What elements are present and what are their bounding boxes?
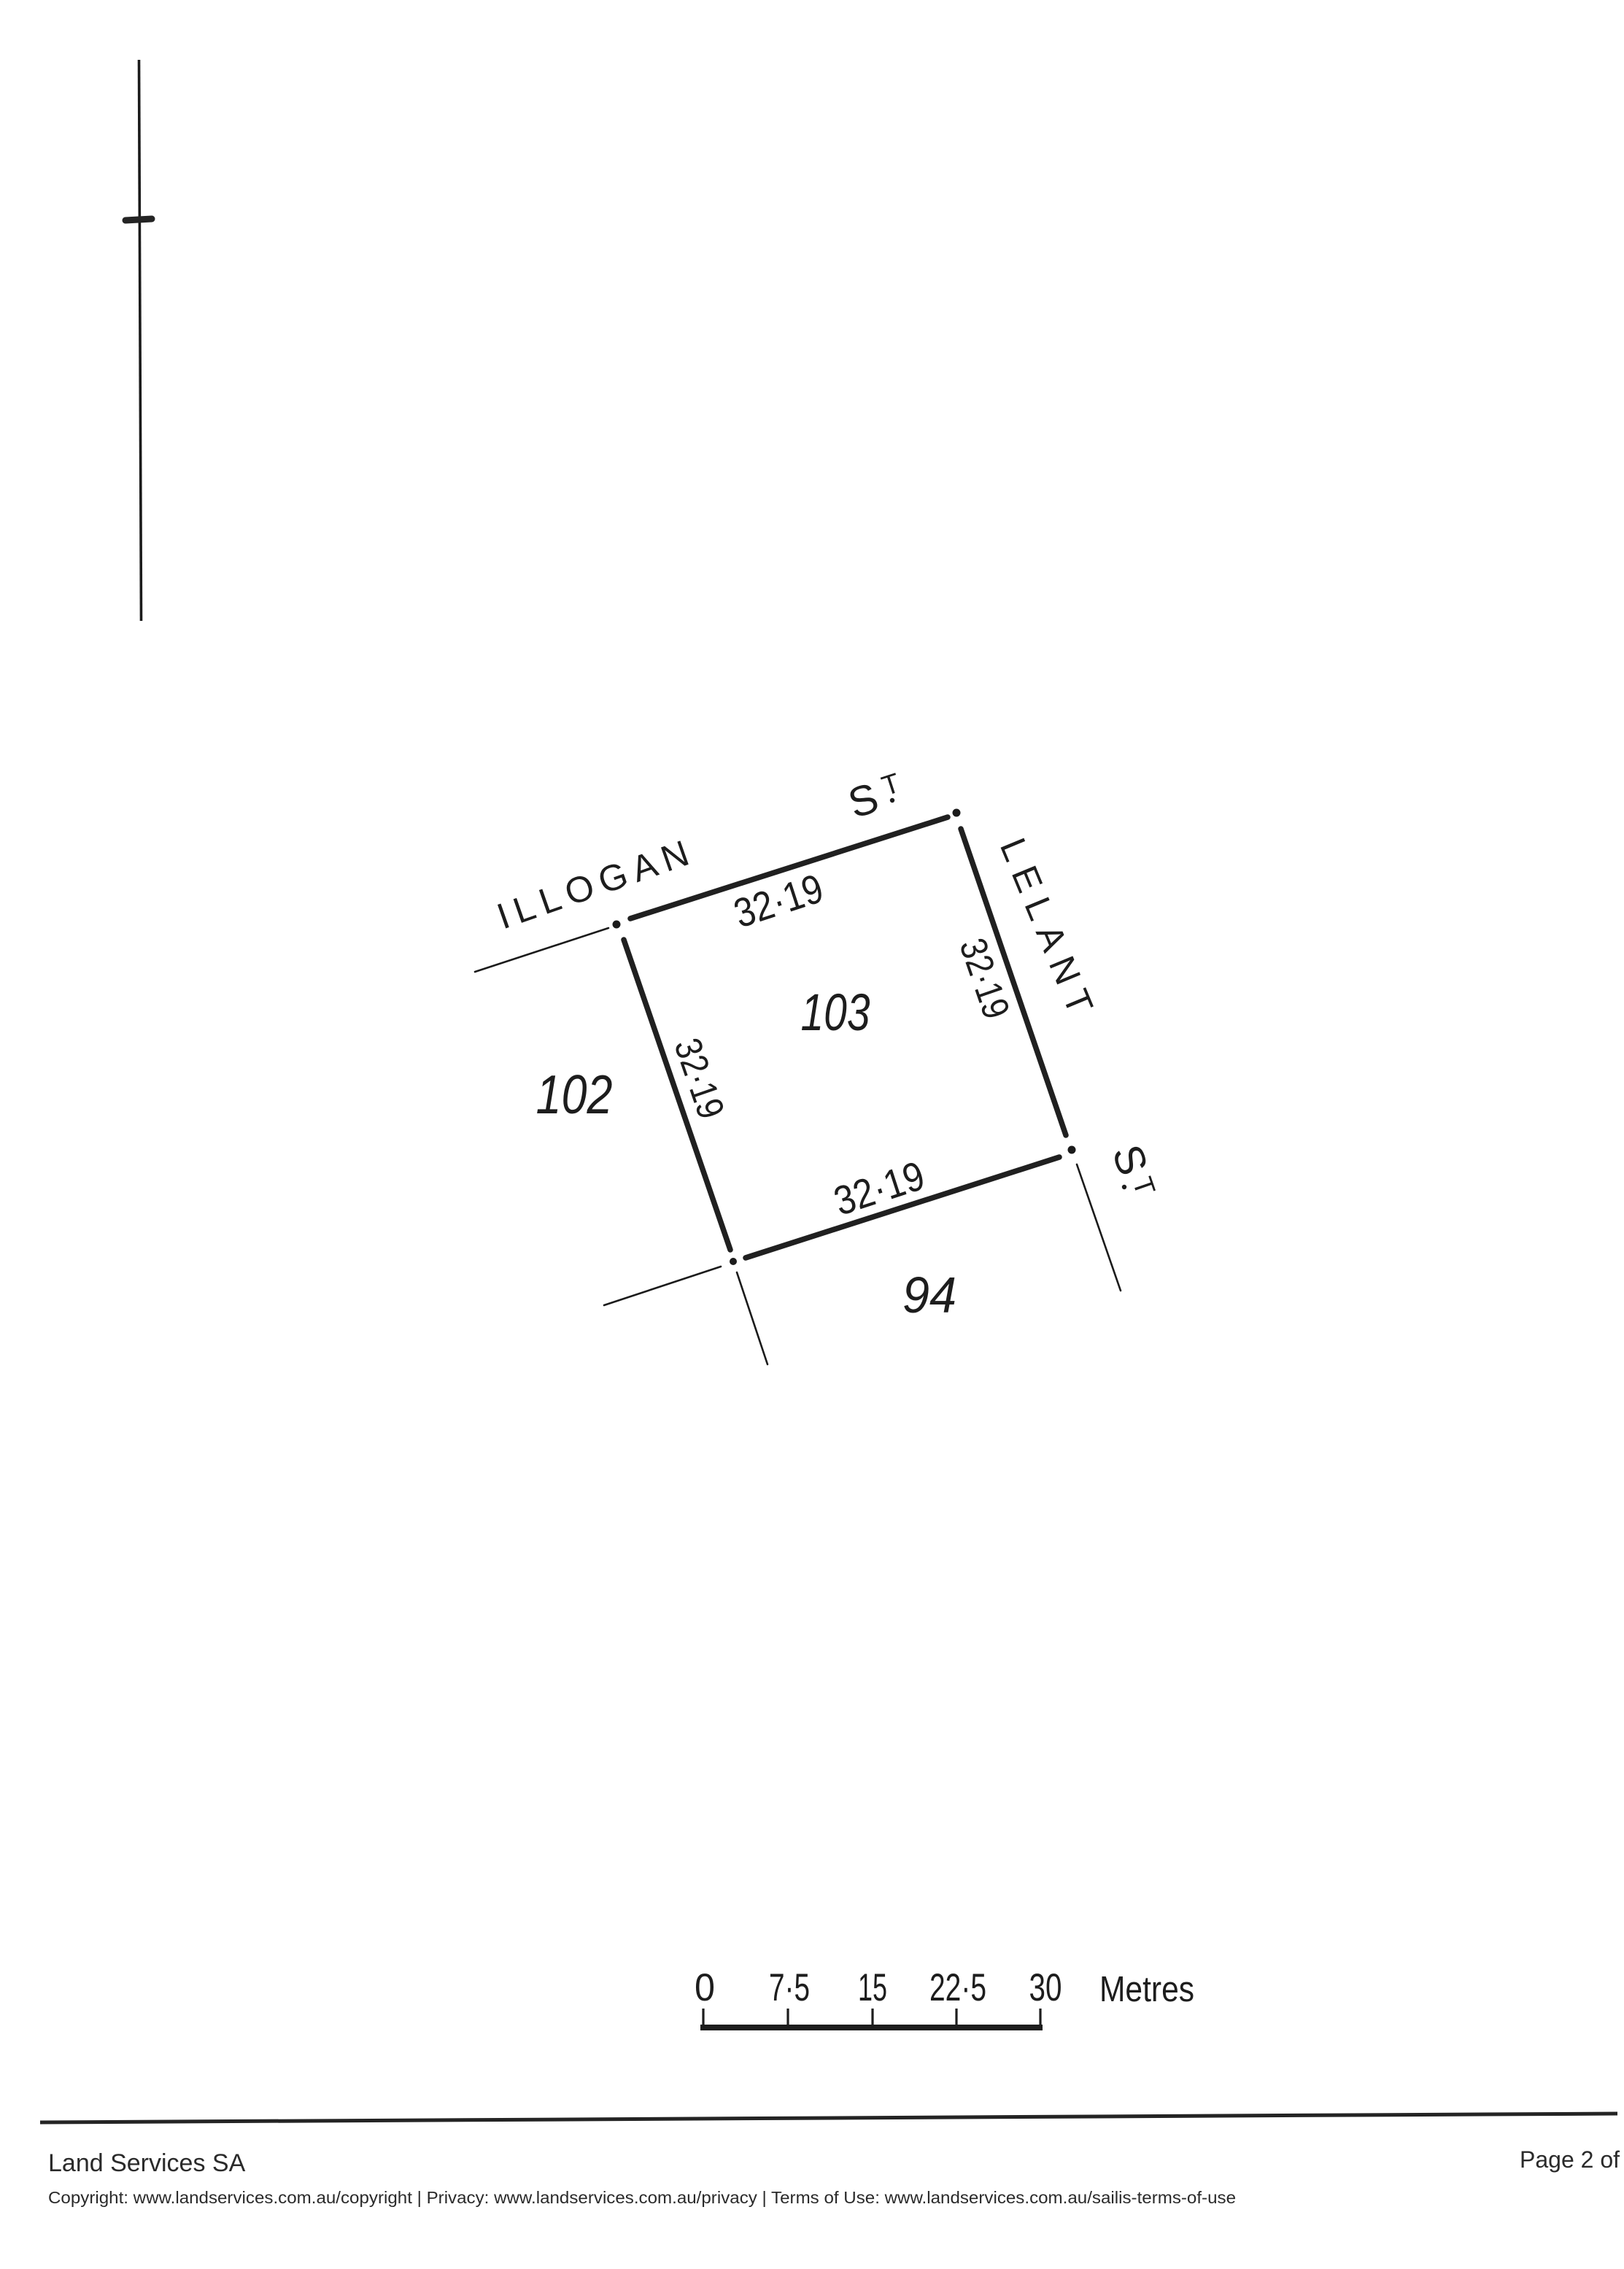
- svg-text:S: S: [843, 774, 884, 828]
- svg-text:7·5: 7·5: [769, 1966, 810, 2009]
- svg-text:T: T: [1126, 1173, 1160, 1199]
- svg-text:22·5: 22·5: [929, 1966, 986, 2009]
- svg-text:30: 30: [1029, 1966, 1062, 2009]
- svg-text:94: 94: [902, 1267, 956, 1323]
- svg-text:T: T: [878, 768, 904, 802]
- svg-text:32·19: 32·19: [951, 933, 1017, 1024]
- svg-text:32·19: 32·19: [665, 1033, 732, 1124]
- svg-text:Metres: Metres: [1099, 1970, 1194, 2009]
- svg-text:S: S: [1103, 1139, 1157, 1181]
- svg-text:32·19: 32·19: [728, 865, 828, 936]
- svg-text:103: 103: [801, 984, 870, 1042]
- svg-text:Land Services SA: Land Services SA: [48, 2149, 246, 2177]
- svg-text:0: 0: [695, 1966, 715, 2009]
- svg-text:Page 2 of: Page 2 of: [1520, 2146, 1620, 2173]
- svg-text:Copyright: www.landservices.co: Copyright: www.landservices.com.au/copyr…: [48, 2188, 1236, 2207]
- svg-text:102: 102: [536, 1064, 613, 1125]
- svg-text:15: 15: [858, 1966, 887, 2009]
- svg-text:ILLOGAN: ILLOGAN: [492, 832, 694, 937]
